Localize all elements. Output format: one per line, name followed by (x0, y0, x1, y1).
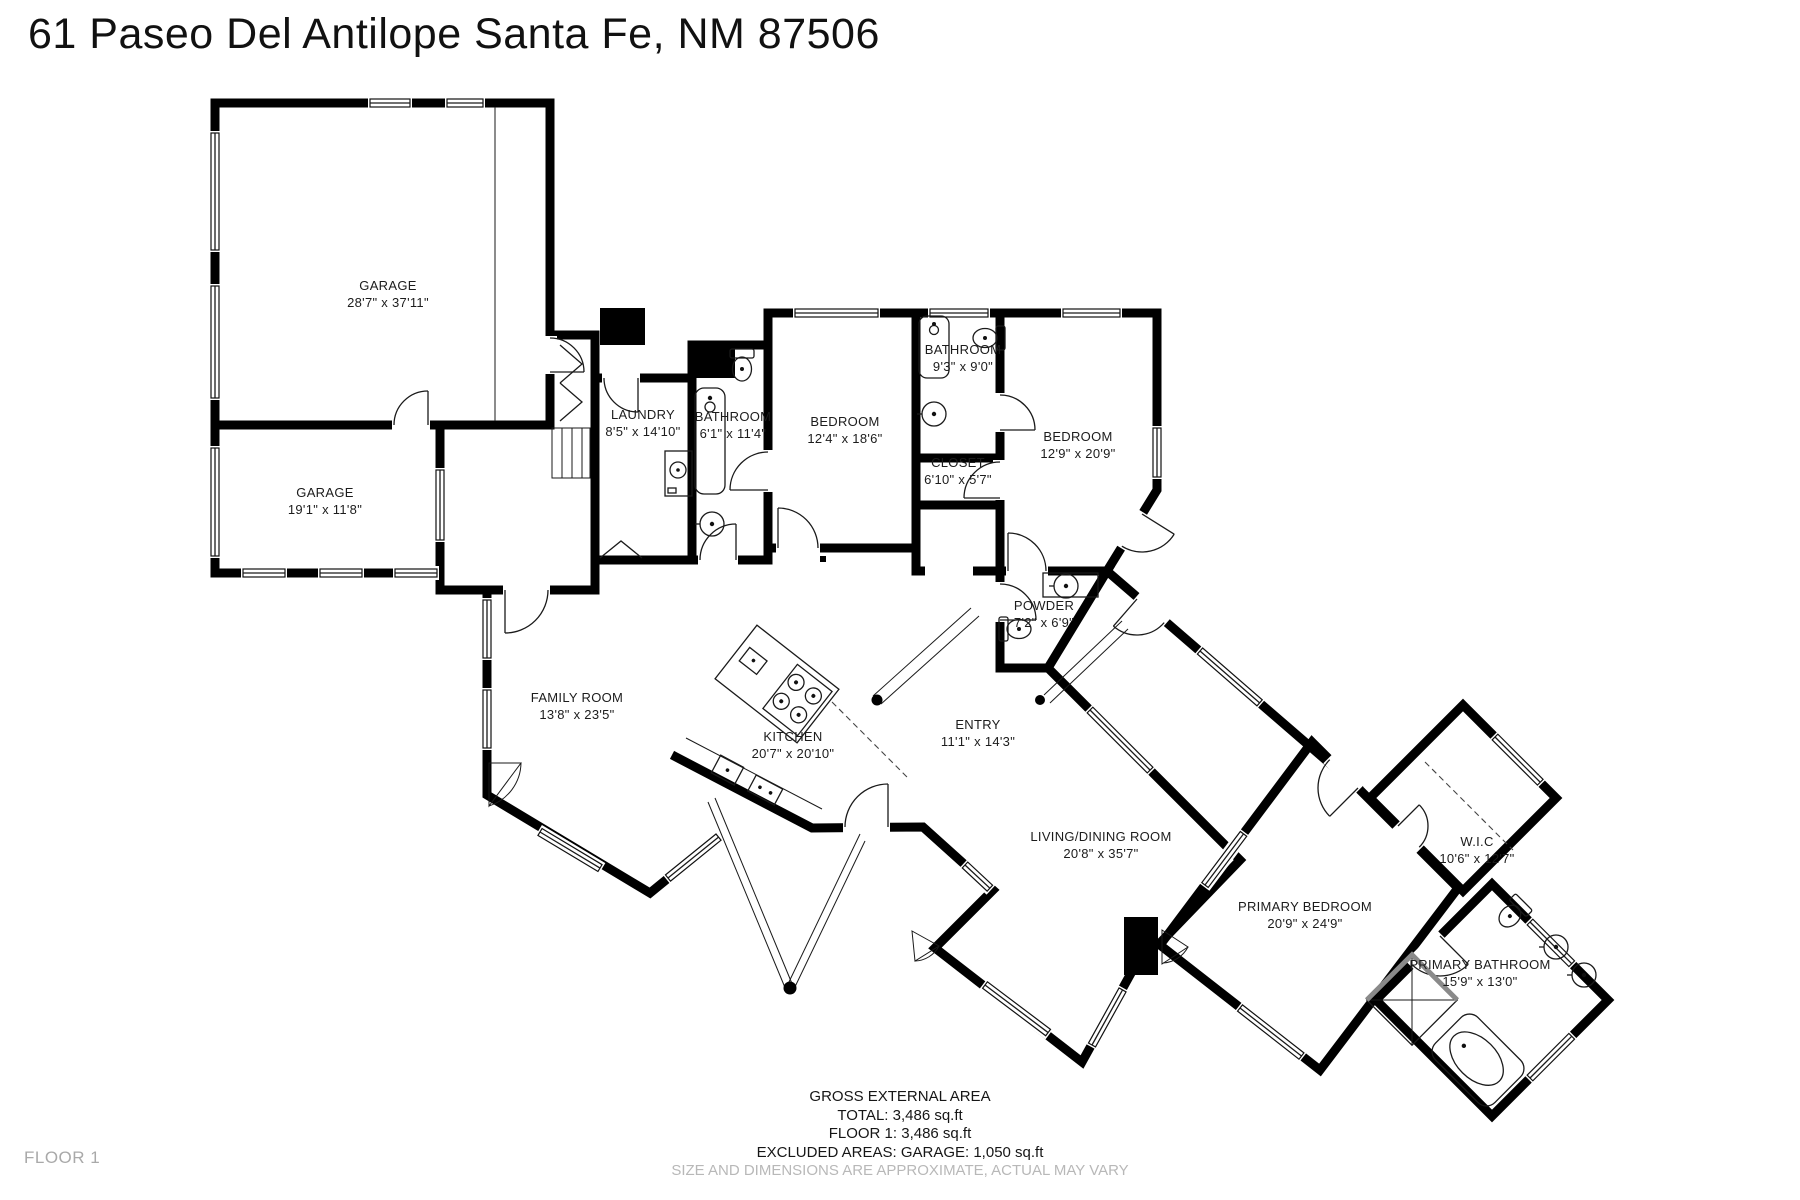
room-label-garage-2: GARAGE (296, 485, 353, 500)
room-dims-primary-bedroom: 20'9" x 24'9" (1267, 916, 1342, 931)
room-dims-laundry: 8'5" x 14'10" (605, 424, 680, 439)
room-label-bedroom-1: BEDROOM (810, 414, 879, 429)
room-label-kitchen: KITCHEN (763, 729, 822, 744)
room-dims-closet: 6'10" x 5'7" (924, 472, 992, 487)
room-label-garage-1: GARAGE (359, 278, 416, 293)
room-dims-garage-2: 19'1" x 11'8" (288, 502, 362, 517)
walkway-rails (708, 608, 1128, 991)
post-icon (784, 982, 797, 995)
post-icon (1035, 695, 1045, 705)
walls (215, 103, 1608, 1116)
room-label-laundry: LAUNDRY (611, 407, 675, 422)
post-icon (820, 556, 826, 562)
room-label-primary-bathroom: PRIMARY BATHROOM (1409, 957, 1550, 972)
room-label-living-dining: LIVING/DINING ROOM (1030, 829, 1171, 844)
post-icon (872, 695, 883, 706)
room-dims-bedroom-2: 12'9" x 20'9" (1040, 446, 1115, 461)
area-summary: GROSS EXTERNAL AREA TOTAL: 3,486 sq.ft F… (0, 1088, 1800, 1181)
room-label-bedroom-2: BEDROOM (1043, 429, 1112, 444)
summary-total: TOTAL: 3,486 sq.ft (0, 1107, 1800, 1126)
room-label-entry: ENTRY (955, 717, 1000, 732)
room-dims-living-dining: 20'8" x 35'7" (1063, 846, 1138, 861)
room-label-primary-bedroom: PRIMARY BEDROOM (1238, 899, 1372, 914)
room-label-bathroom-1: BATHROOM (695, 409, 772, 424)
room-dims-wic: 10'6" x 12'7" (1439, 851, 1514, 866)
room-dims-garage-1: 28'7" x 37'11" (347, 295, 429, 310)
summary-floor1: FLOOR 1: 3,486 sq.ft (0, 1125, 1800, 1144)
kitchen-island-icon (715, 625, 839, 743)
room-dims-family-room: 13'8" x 23'5" (539, 707, 614, 722)
room-label-family-room: FAMILY ROOM (531, 690, 623, 705)
floor-plan-page: 61 Paseo Del Antilope Santa Fe, NM 87506 (0, 0, 1800, 1200)
room-dims-bedroom-1: 12'4" x 18'6" (807, 431, 882, 446)
room-label-wic: W.I.C (1460, 834, 1493, 849)
summary-excluded: EXCLUDED AREAS: GARAGE: 1,050 sq.ft (0, 1144, 1800, 1163)
floor-plan-drawing: GARAGE 28'7" x 37'11" GARAGE 19'1" x 11'… (0, 0, 1800, 1200)
room-dims-powder: 7'2" x 6'9" (1014, 615, 1074, 630)
summary-disclaimer: SIZE AND DIMENSIONS ARE APPROXIMATE, ACT… (0, 1162, 1800, 1181)
room-dims-entry: 11'1" x 14'3" (941, 734, 1015, 749)
room-dims-primary-bathroom: 15'9" x 13'0" (1442, 974, 1517, 989)
room-dims-bathroom-2: 9'3" x 9'0" (933, 359, 993, 374)
summary-heading: GROSS EXTERNAL AREA (0, 1088, 1800, 1107)
room-dims-kitchen: 20'7" x 20'10" (752, 746, 835, 761)
room-label-closet: CLOSET (931, 455, 985, 470)
upper-cabinets (832, 702, 908, 778)
room-label-bathroom-2: BATHROOM (925, 342, 1002, 357)
room-dims-bathroom-1: 6'1" x 11'4" (700, 426, 767, 441)
fireplace-icon (489, 763, 521, 806)
room-label-powder: POWDER (1014, 598, 1074, 613)
floor-label: FLOOR 1 (24, 1148, 100, 1168)
